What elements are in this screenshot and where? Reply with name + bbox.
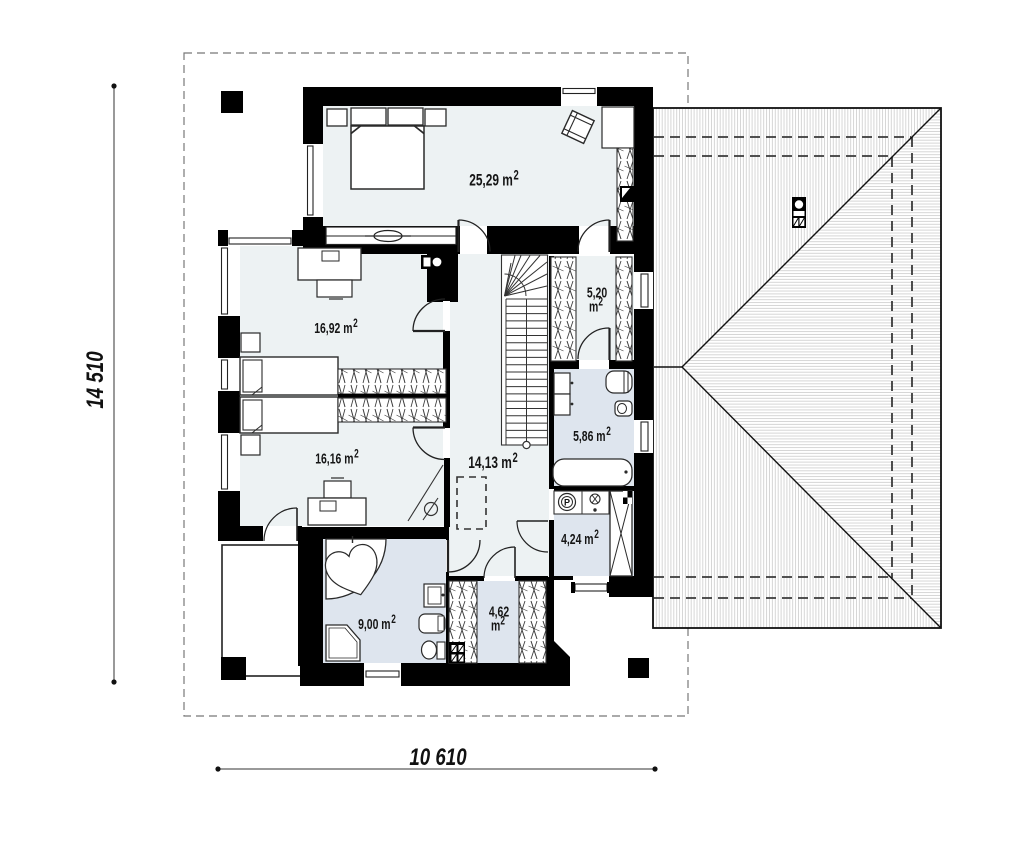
svg-text:14 510: 14 510: [82, 351, 109, 408]
svg-text:25,29 m2: 25,29 m2: [469, 168, 519, 190]
svg-text:P: P: [564, 498, 570, 508]
svg-text:16,92 m2: 16,92 m2: [314, 318, 358, 337]
svg-text:5,86 m2: 5,86 m2: [573, 426, 611, 445]
svg-text:16,16 m2: 16,16 m2: [315, 448, 359, 467]
svg-text:10 610: 10 610: [409, 744, 466, 771]
svg-text:4,24 m2: 4,24 m2: [561, 529, 599, 548]
svg-text:9,00 m2: 9,00 m2: [358, 614, 396, 633]
svg-text:14,13 m2: 14,13 m2: [468, 450, 518, 472]
